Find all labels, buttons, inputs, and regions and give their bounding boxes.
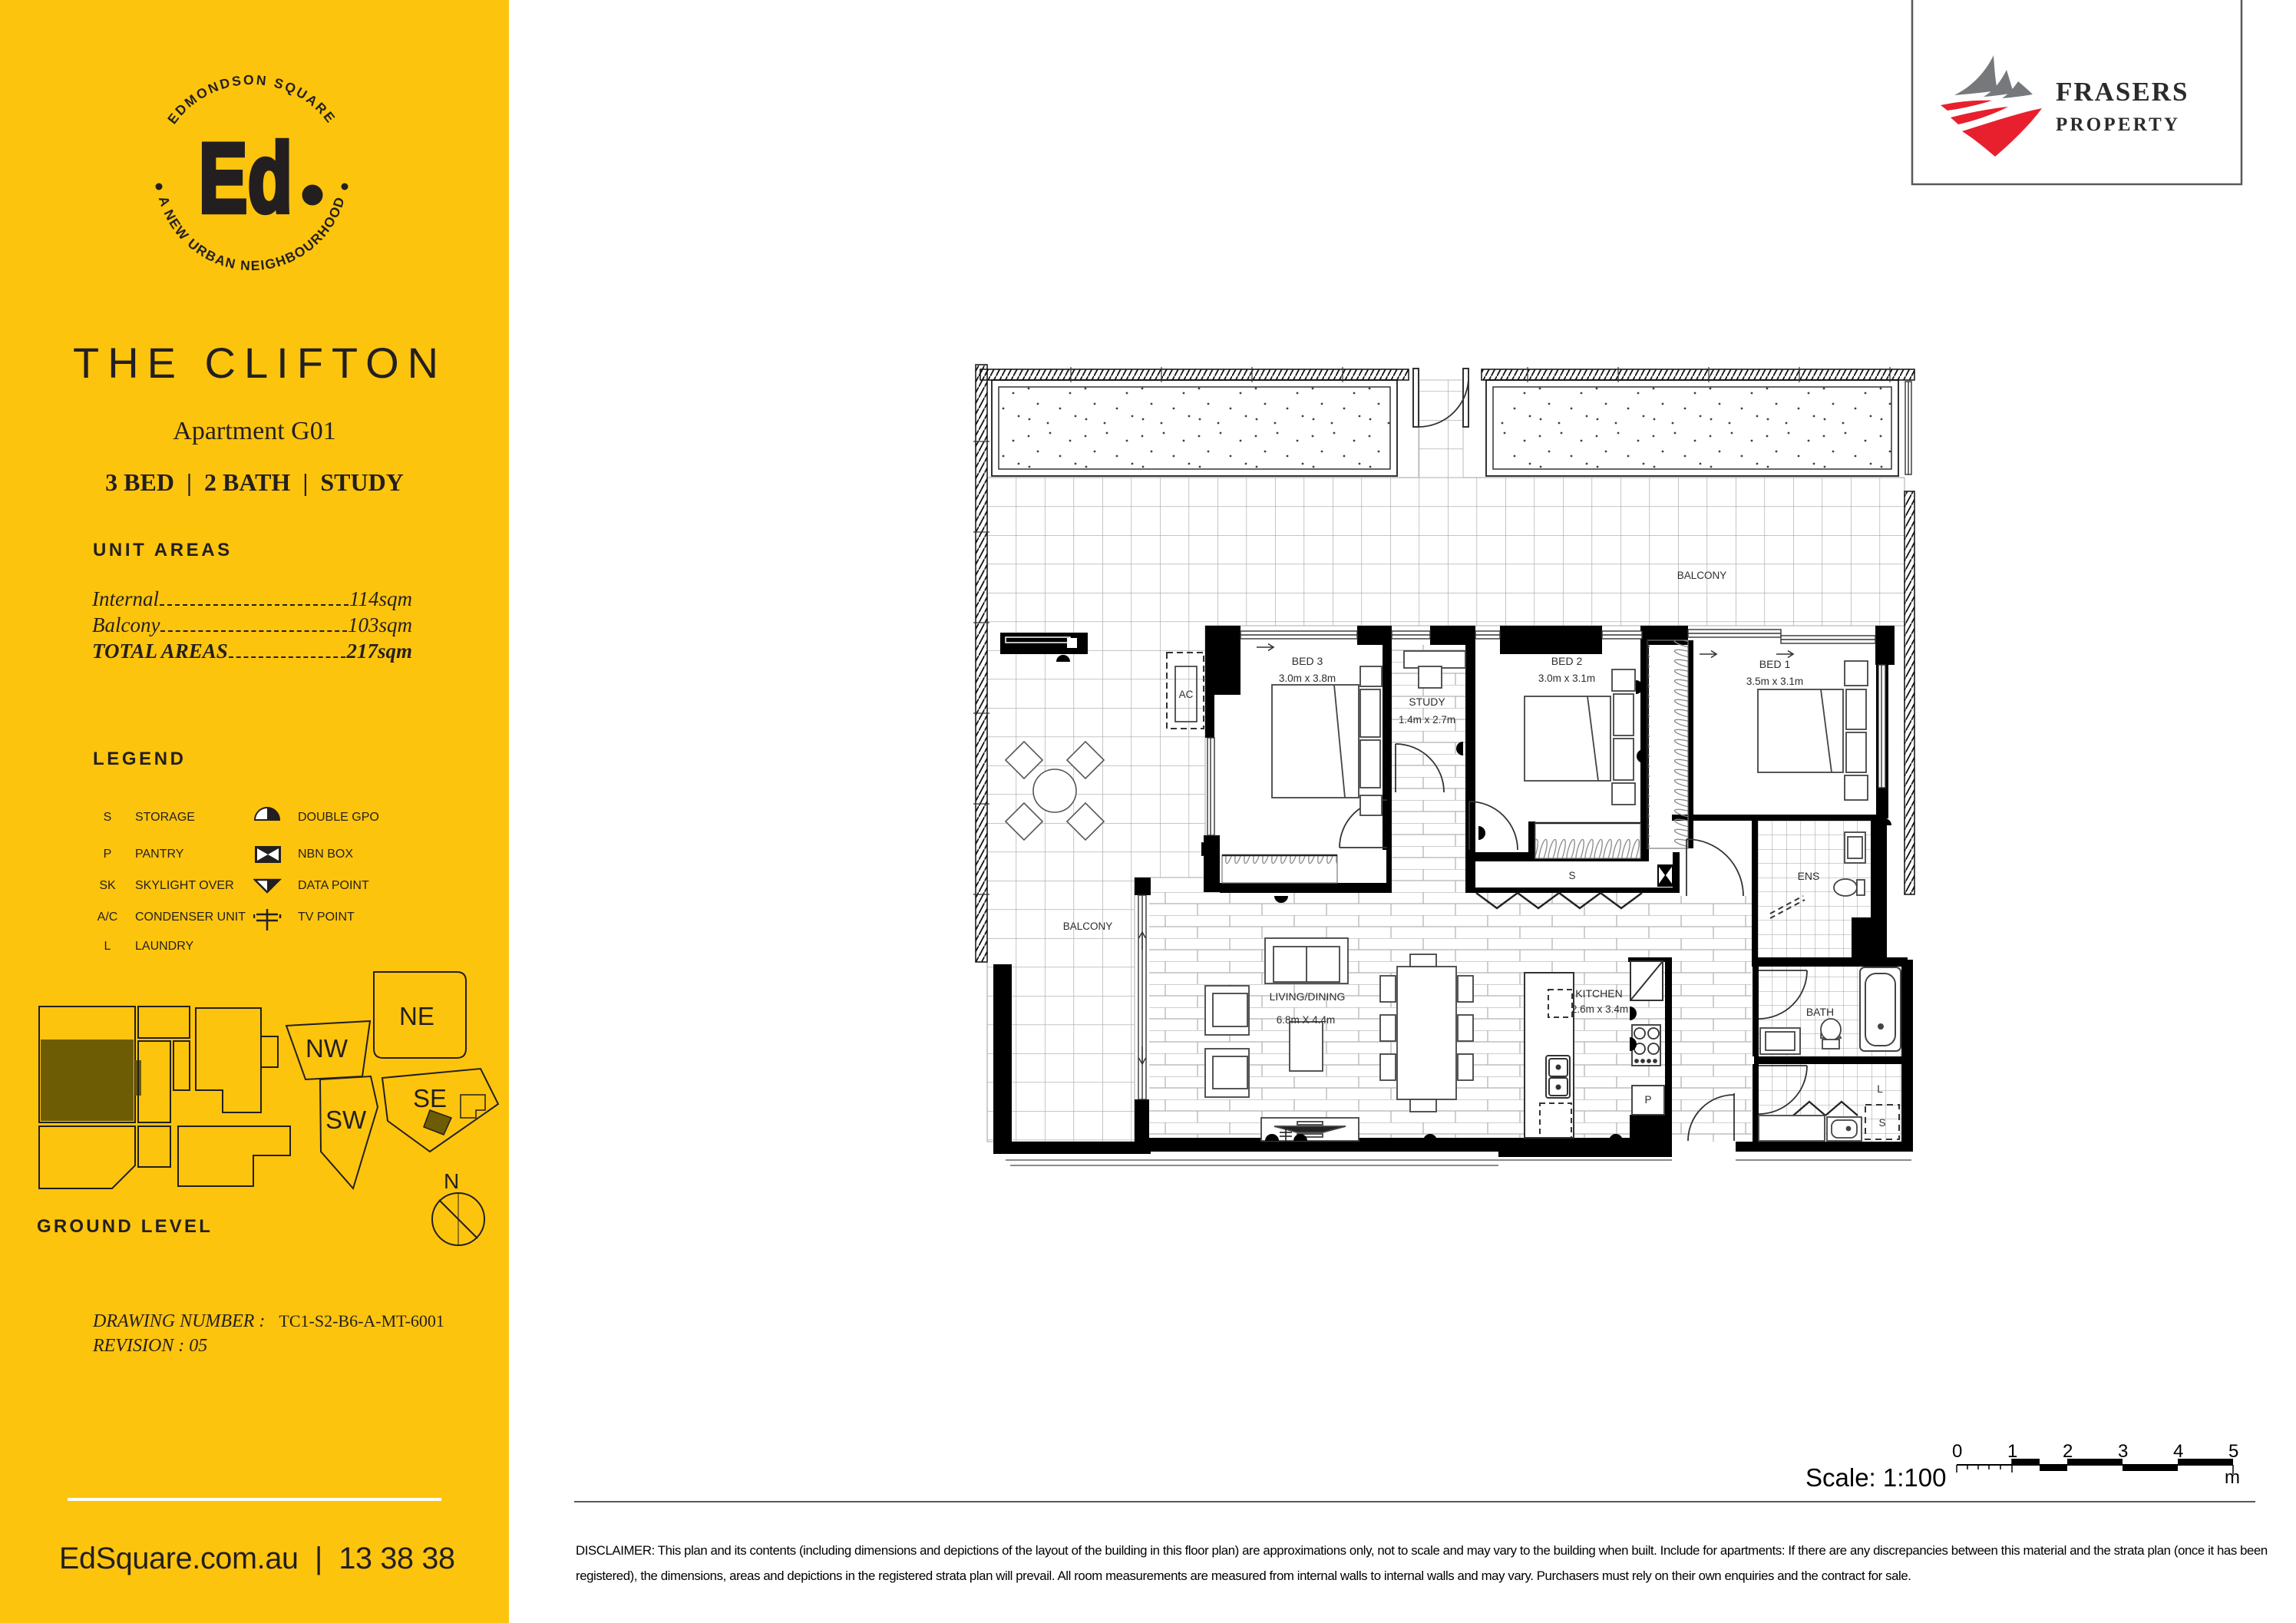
svg-text:LIVING/DINING: LIVING/DINING	[1270, 990, 1346, 1003]
svg-text:STUDY: STUDY	[1409, 696, 1445, 708]
svg-text:ENS: ENS	[1798, 870, 1820, 882]
svg-text:BALCONY: BALCONY	[1063, 921, 1113, 932]
svg-text:P: P	[1644, 1094, 1651, 1106]
svg-text:3.0m x 3.1m: 3.0m x 3.1m	[1538, 673, 1595, 684]
svg-text:BED 2: BED 2	[1551, 655, 1583, 667]
svg-text:S: S	[1568, 870, 1575, 881]
svg-text:BATH: BATH	[1806, 1006, 1834, 1018]
svg-text:BED 1: BED 1	[1759, 658, 1791, 670]
svg-text:L: L	[1877, 1083, 1883, 1095]
svg-text:1.4m x 2.7m: 1.4m x 2.7m	[1399, 714, 1455, 726]
svg-text:KITCHEN: KITCHEN	[1575, 987, 1622, 1000]
svg-text:6.8m X 4.4m: 6.8m X 4.4m	[1277, 1014, 1336, 1026]
svg-text:3.0m x 3.8m: 3.0m x 3.8m	[1279, 673, 1336, 684]
svg-text:BALCONY: BALCONY	[1677, 570, 1727, 581]
svg-text:BED 3: BED 3	[1292, 655, 1323, 667]
svg-text:AC: AC	[1179, 689, 1194, 700]
svg-text:2.6m x 3.4m: 2.6m x 3.4m	[1571, 1003, 1628, 1015]
svg-text:S: S	[1878, 1117, 1885, 1129]
svg-text:3.5m x 3.1m: 3.5m x 3.1m	[1746, 676, 1803, 687]
